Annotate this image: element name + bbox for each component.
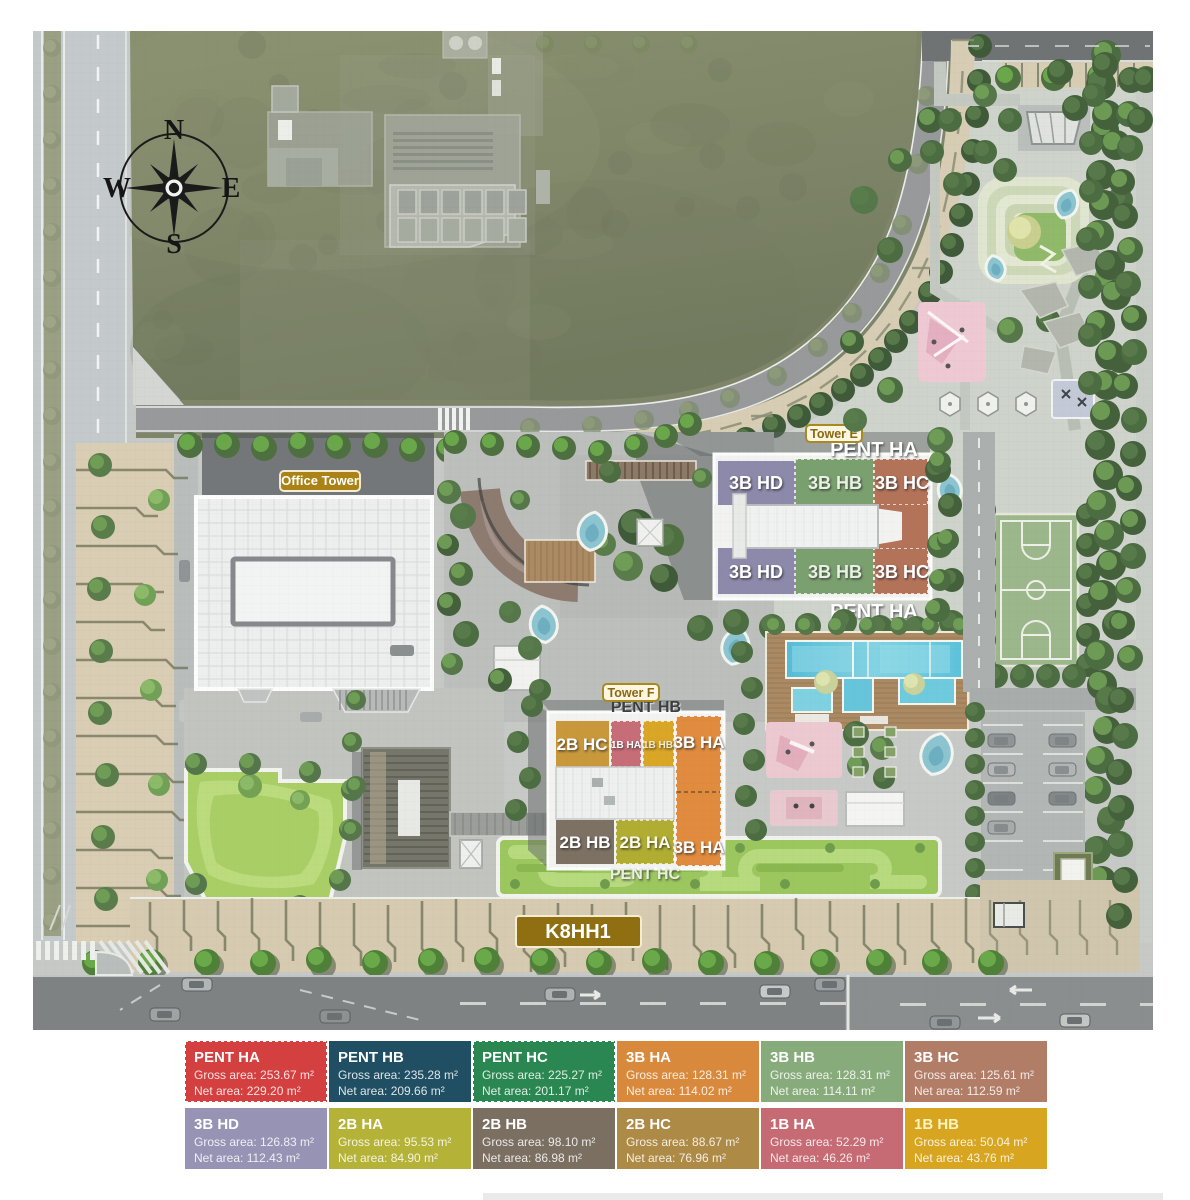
svg-text:2B HB: 2B HB xyxy=(482,1116,527,1133)
svg-text:Net area: 229.20 m²: Net area: 229.20 m² xyxy=(194,1084,301,1098)
svg-text:Net area: 112.59 m²: Net area: 112.59 m² xyxy=(914,1084,1020,1098)
svg-text:Gross area: 98.10 m²: Gross area: 98.10 m² xyxy=(482,1135,595,1149)
svg-text:Gross area: 95.53 m²: Gross area: 95.53 m² xyxy=(338,1135,451,1149)
svg-text:PENT HB: PENT HB xyxy=(338,1049,404,1066)
svg-text:Gross area: 225.27 m²: Gross area: 225.27 m² xyxy=(482,1068,602,1082)
svg-text:2B HA: 2B HA xyxy=(338,1116,383,1133)
svg-text:1B HA: 1B HA xyxy=(770,1116,815,1133)
svg-text:Net area: 209.66 m²: Net area: 209.66 m² xyxy=(338,1084,445,1098)
svg-text:3B HA: 3B HA xyxy=(626,1049,671,1066)
svg-text:Gross area: 88.67 m²: Gross area: 88.67 m² xyxy=(626,1135,739,1149)
svg-text:Net area: 43.76 m²: Net area: 43.76 m² xyxy=(914,1151,1014,1165)
svg-text:Net area: 114.11 m²: Net area: 114.11 m² xyxy=(770,1084,875,1098)
svg-text:Gross area: 52.29 m²: Gross area: 52.29 m² xyxy=(770,1135,883,1149)
svg-text:3B HC: 3B HC xyxy=(914,1049,959,1066)
svg-text:1B HB: 1B HB xyxy=(914,1116,959,1133)
svg-text:Gross area: 126.83 m²: Gross area: 126.83 m² xyxy=(194,1135,314,1149)
svg-text:Net area: 201.17 m²: Net area: 201.17 m² xyxy=(482,1084,589,1098)
svg-text:3B HD: 3B HD xyxy=(194,1116,239,1133)
svg-text:Net area: 76.96 m²: Net area: 76.96 m² xyxy=(626,1151,726,1165)
svg-text:3B HB: 3B HB xyxy=(770,1049,815,1066)
svg-text:2B HC: 2B HC xyxy=(626,1116,671,1133)
svg-text:PENT HA: PENT HA xyxy=(194,1049,260,1066)
svg-text:Net area: 46.26 m²: Net area: 46.26 m² xyxy=(770,1151,870,1165)
svg-text:Gross area: 253.67 m²: Gross area: 253.67 m² xyxy=(194,1068,314,1082)
svg-text:PENT HC: PENT HC xyxy=(482,1049,548,1066)
svg-text:Net area: 84.90 m²: Net area: 84.90 m² xyxy=(338,1151,438,1165)
svg-text:Gross area: 50.04 m²: Gross area: 50.04 m² xyxy=(914,1135,1027,1149)
svg-text:Gross area: 125.61 m²: Gross area: 125.61 m² xyxy=(914,1068,1034,1082)
svg-text:Gross area: 128.31 m²: Gross area: 128.31 m² xyxy=(770,1068,890,1082)
svg-text:Net area: 112.43 m²: Net area: 112.43 m² xyxy=(194,1151,300,1165)
svg-text:Gross area: 128.31 m²: Gross area: 128.31 m² xyxy=(626,1068,746,1082)
svg-text:Net area: 114.02 m²: Net area: 114.02 m² xyxy=(626,1084,732,1098)
svg-text:Net area: 86.98 m²: Net area: 86.98 m² xyxy=(482,1151,582,1165)
svg-text:Gross area: 235.28 m²: Gross area: 235.28 m² xyxy=(338,1068,458,1082)
